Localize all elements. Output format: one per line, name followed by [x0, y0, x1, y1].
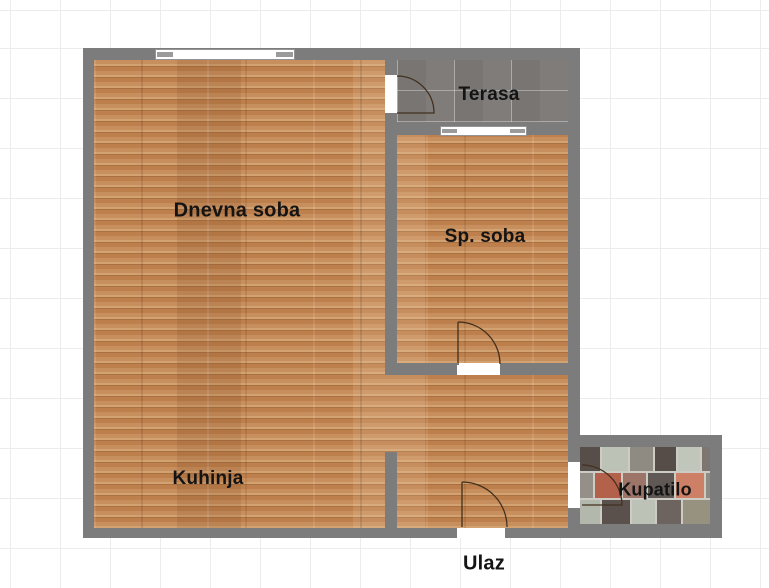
wall-kitchen-hall-stub — [385, 452, 397, 528]
room-label-kuhinja: Kuhinja — [172, 468, 243, 490]
wall-bottom — [83, 528, 580, 538]
wall-bathroom-bottom — [568, 524, 722, 538]
door-opening-bathroom — [568, 462, 580, 508]
room-label-terasa: Terasa — [458, 84, 519, 106]
wall-left — [83, 48, 94, 538]
wall-right — [568, 48, 580, 528]
window-living-room — [155, 49, 295, 60]
window-cap — [510, 129, 525, 133]
room-label-ulaz: Ulaz — [463, 553, 505, 576]
door-opening-bedroom — [457, 363, 500, 375]
door-opening-entrance — [457, 528, 505, 538]
window-bedroom-terrace — [440, 126, 527, 136]
wall-bathroom-top — [568, 435, 722, 447]
window-cap — [442, 129, 457, 133]
wall-bathroom-right — [710, 435, 722, 538]
bathroom-tile-row — [580, 447, 710, 471]
window-cap — [157, 52, 173, 57]
room-label-sp-soba: Sp. soba — [445, 226, 526, 248]
bathroom-tile-row — [580, 500, 710, 524]
floor-plan-canvas: { "floorplan": { "rooms": [ {"id": "dnev… — [0, 0, 769, 588]
door-opening-terrace — [385, 75, 397, 113]
room-label-dnevna-soba: Dnevna soba — [174, 200, 301, 223]
window-cap — [276, 52, 293, 57]
room-label-kupatilo: Kupatilo — [618, 480, 692, 501]
